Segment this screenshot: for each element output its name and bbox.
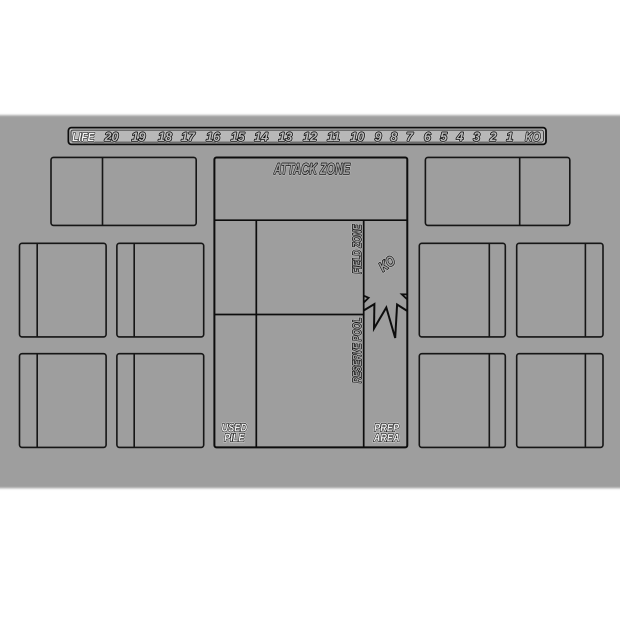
svg-text:1: 1 bbox=[506, 130, 513, 144]
svg-text:14: 14 bbox=[254, 130, 268, 144]
svg-text:9: 9 bbox=[375, 130, 382, 144]
svg-text:10: 10 bbox=[350, 130, 364, 144]
svg-text:KO: KO bbox=[525, 130, 541, 144]
svg-text:15: 15 bbox=[231, 130, 246, 144]
svg-text:PILE: PILE bbox=[224, 433, 245, 445]
svg-text:3: 3 bbox=[473, 130, 480, 144]
svg-text:LIFE: LIFE bbox=[72, 130, 95, 144]
svg-text:17: 17 bbox=[181, 130, 196, 144]
svg-text:2: 2 bbox=[489, 130, 497, 144]
svg-text:11: 11 bbox=[327, 130, 340, 144]
svg-text:12: 12 bbox=[303, 130, 317, 144]
svg-text:7: 7 bbox=[406, 130, 414, 144]
svg-text:20: 20 bbox=[103, 130, 118, 144]
svg-text:18: 18 bbox=[158, 130, 172, 144]
svg-text:8: 8 bbox=[390, 130, 397, 144]
svg-text:5: 5 bbox=[440, 130, 448, 144]
svg-text:AREA: AREA bbox=[373, 433, 400, 445]
svg-text:FIELD ZONE: FIELD ZONE bbox=[350, 224, 364, 274]
svg-text:ATTACK ZONE: ATTACK ZONE bbox=[273, 161, 350, 178]
svg-text:RESERVE POOL: RESERVE POOL bbox=[350, 318, 364, 383]
svg-text:16: 16 bbox=[206, 130, 221, 144]
svg-text:13: 13 bbox=[278, 130, 292, 144]
svg-text:4: 4 bbox=[455, 130, 463, 144]
svg-text:19: 19 bbox=[131, 130, 145, 144]
svg-text:6: 6 bbox=[424, 130, 432, 144]
